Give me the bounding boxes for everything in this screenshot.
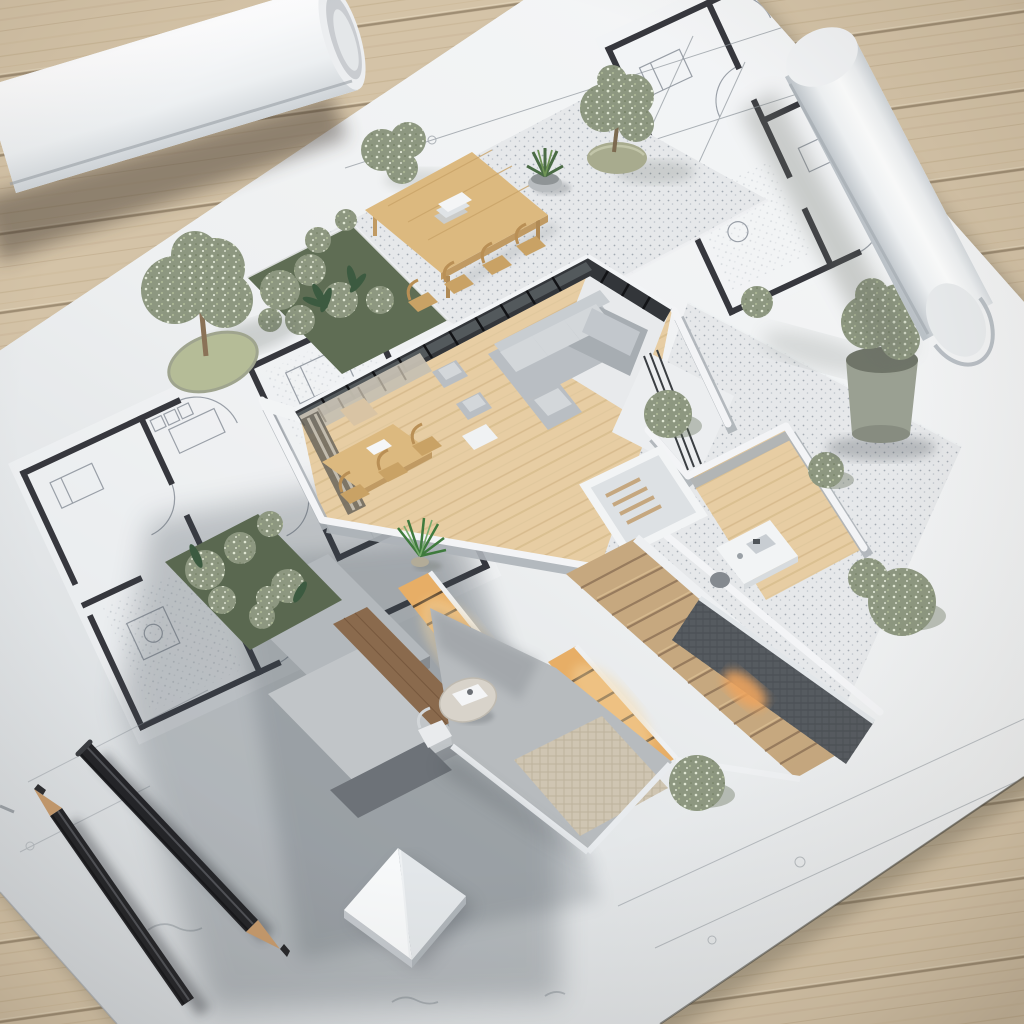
photo-of-architectural-model: Photorealistic 3D cut-away house model s… xyxy=(0,0,1024,1024)
vignette xyxy=(0,0,1024,1024)
